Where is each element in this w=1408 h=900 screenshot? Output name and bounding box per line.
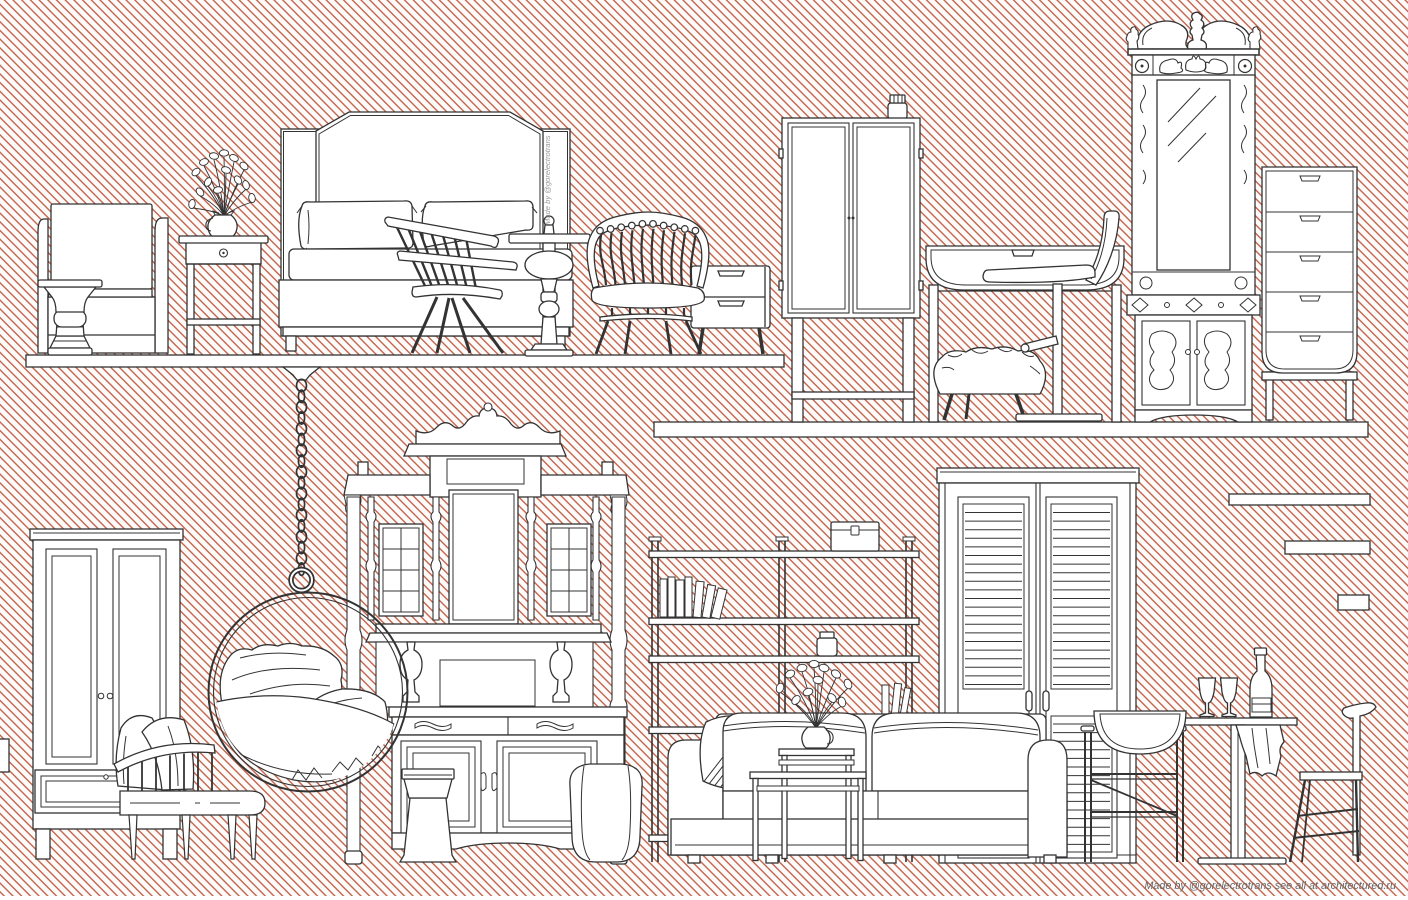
svg-text:Made by @gorelectrotrans: Made by @gorelectrotrans <box>543 135 552 225</box>
svg-text:Made by @gorelectrotrans see a: Made by @gorelectrotrans see all at arch… <box>1144 880 1396 892</box>
